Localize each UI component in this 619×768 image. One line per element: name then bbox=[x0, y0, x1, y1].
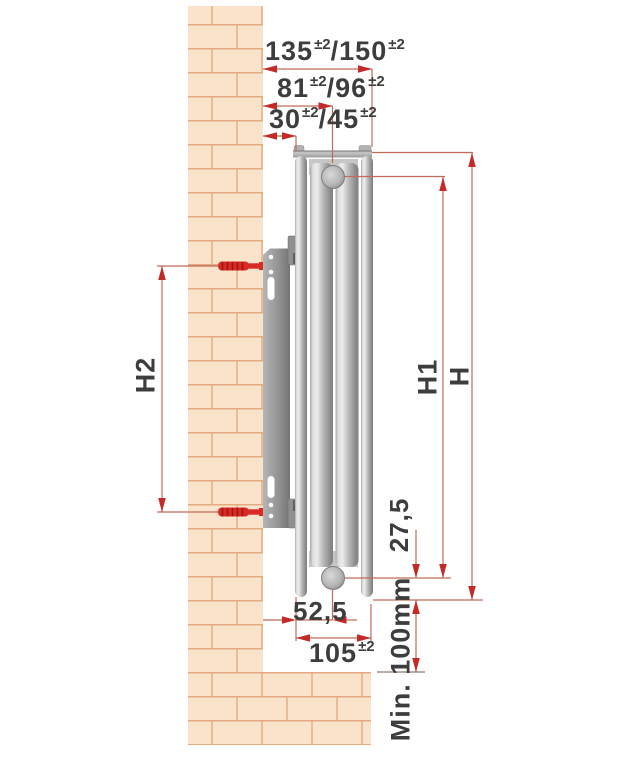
convector-panel-rear bbox=[310, 163, 333, 567]
dim-value: 52,5 bbox=[293, 596, 348, 626]
dimension-label-h2: H2 bbox=[133, 357, 160, 394]
bracket-hole bbox=[269, 503, 274, 508]
rear-panel bbox=[295, 156, 307, 597]
radiator-mounting-diagram: 135±2/150±2 81±2/96±2 30±2/45±2 52,5 105… bbox=[0, 0, 619, 768]
wall-bracket bbox=[263, 236, 300, 528]
dimension-label-wall-to-front: 135±2/150±2 bbox=[265, 38, 405, 65]
dimension-label-half-depth: 52,5 bbox=[293, 598, 348, 624]
dim-tolerance: ±2 bbox=[388, 36, 405, 53]
wall-column bbox=[188, 6, 263, 745]
dimension-label-wall-to-pipe: 81±2/96±2 bbox=[277, 75, 385, 102]
bracket-slot-bottom bbox=[268, 476, 275, 498]
dim-tolerance: ±2 bbox=[358, 638, 375, 655]
dim-value: 135 bbox=[265, 36, 313, 66]
bottom-pipe bbox=[322, 567, 345, 590]
bracket-plate bbox=[263, 249, 290, 529]
dim-value: 105 bbox=[309, 638, 357, 668]
dim-separator: / bbox=[331, 36, 340, 66]
dim-value: 150 bbox=[339, 36, 387, 66]
dim-tolerance: ±2 bbox=[314, 36, 331, 53]
dimension-label-depth: 105±2 bbox=[309, 640, 375, 667]
top-pipe bbox=[322, 166, 345, 189]
dim-separator: / bbox=[319, 104, 328, 134]
floor bbox=[263, 672, 371, 745]
dimension-label-h1: H1 bbox=[415, 359, 442, 396]
bracket-hole bbox=[269, 255, 274, 260]
bracket-slot-top bbox=[268, 277, 275, 300]
dim-value: 81 bbox=[277, 73, 309, 103]
dimension-label-wall-to-rear: 30±2/45±2 bbox=[269, 106, 377, 133]
radiator-body bbox=[293, 146, 373, 598]
dim-value: 30 bbox=[269, 104, 301, 134]
dim-tolerance: ±2 bbox=[302, 104, 319, 121]
dim-value: 45 bbox=[327, 104, 359, 134]
convector-panel-front bbox=[336, 163, 359, 567]
dim-separator: / bbox=[327, 73, 336, 103]
bracket-hole bbox=[269, 270, 274, 275]
dim-value: 96 bbox=[335, 73, 367, 103]
dimension-label-floor-clearance: Min. 100mm bbox=[388, 577, 415, 742]
dim-tolerance: ±2 bbox=[310, 73, 327, 90]
dimension-label-pipe-offset: 27,5 bbox=[386, 498, 412, 553]
dim-tolerance: ±2 bbox=[360, 104, 377, 121]
dimension-label-h: H bbox=[447, 366, 474, 387]
bracket-hole bbox=[269, 514, 274, 519]
front-panel bbox=[361, 156, 373, 597]
dim-tolerance: ±2 bbox=[368, 73, 385, 90]
